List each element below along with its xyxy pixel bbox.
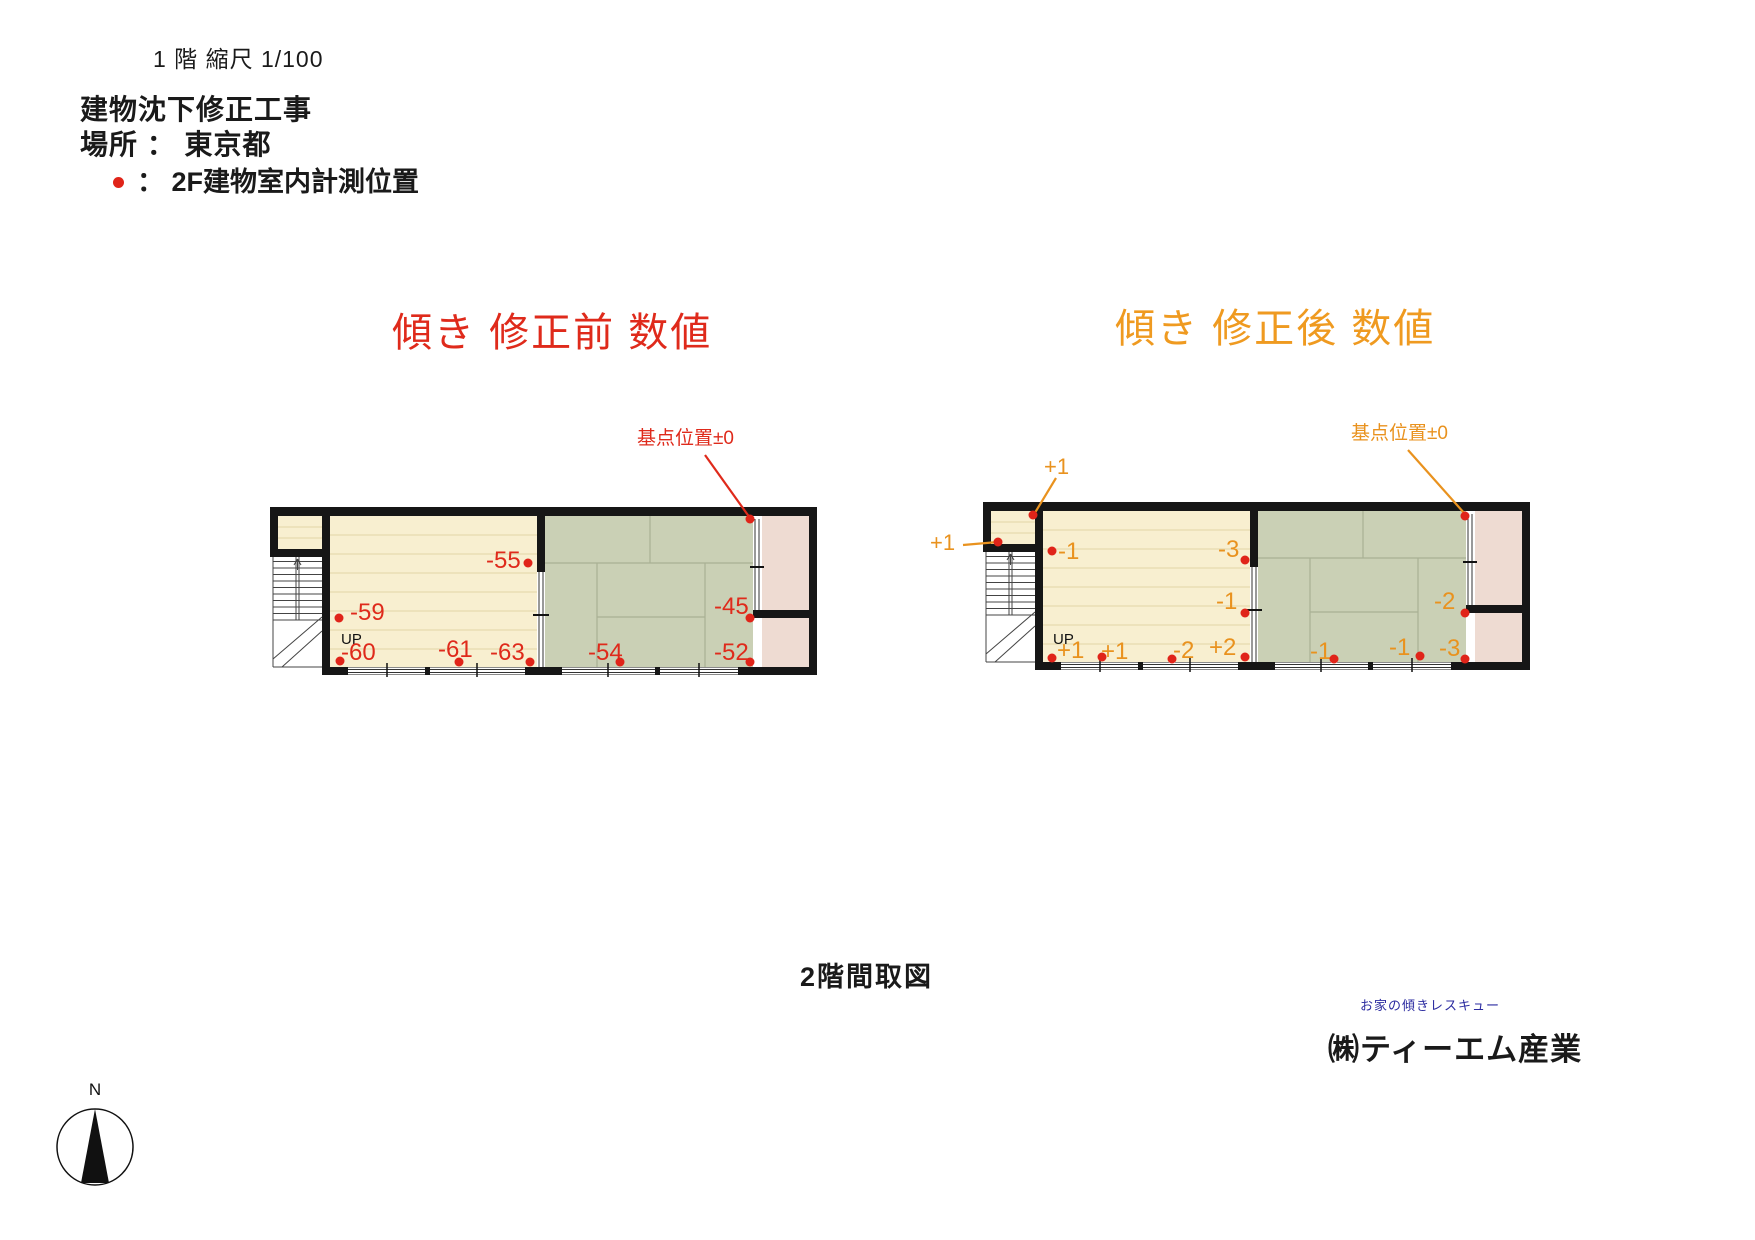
measurement-label: +1 <box>930 532 955 554</box>
after-datum-label: 基点位置±0 <box>1351 424 1448 443</box>
measurement-label: -45 <box>714 595 749 619</box>
measurement-label: -55 <box>486 549 521 573</box>
measurement-label: -1 <box>1216 590 1237 614</box>
measurement-label: +2 <box>1209 636 1236 660</box>
location-line: 場所 ： 東京都 <box>80 123 272 163</box>
drawing-page: 1 階 縮尺 1/100 建物沈下修正工事 場所 ： 東京都 ： 2F建物室内計… <box>0 0 1755 1240</box>
east-room-bottom <box>762 618 809 667</box>
measurement-label: -60 <box>341 641 376 665</box>
measurement-label: -52 <box>714 641 749 665</box>
measurement-label: -59 <box>350 601 385 625</box>
scale-note: 1 階 縮尺 1/100 <box>153 40 324 74</box>
before-datum-label: 基点位置±0 <box>637 429 734 448</box>
north-compass: N <box>48 1078 148 1193</box>
legend-measurement-dot-icon <box>113 177 124 188</box>
tatami-room <box>1258 511 1466 662</box>
measurement-dot <box>1241 653 1250 662</box>
company-name: ㈱ティーエム産業 <box>1328 1024 1582 1069</box>
before-datum-dot <box>746 515 755 524</box>
measurement-dot <box>1416 652 1425 661</box>
after-plan-title: 傾き 修正後 数値 <box>1115 296 1435 354</box>
measurement-dot <box>524 559 533 568</box>
drawing-caption: 2階間取図 <box>800 955 933 994</box>
measurement-label: -1 <box>1310 640 1331 664</box>
storage-room-floor <box>278 516 322 549</box>
measurement-dot <box>1330 655 1339 664</box>
measurement-dot <box>1029 511 1038 520</box>
measurement-dot <box>455 658 464 667</box>
stairs <box>986 552 1035 662</box>
after-datum-dot <box>1461 512 1470 521</box>
measurement-dot <box>1048 654 1057 663</box>
measurement-dot <box>746 614 755 623</box>
project-title: 建物沈下修正工事 <box>80 88 312 128</box>
stairs <box>273 557 322 667</box>
measurement-dot <box>994 538 1003 547</box>
measurement-dot <box>1461 655 1470 664</box>
before-plan-title: 傾き 修正前 数値 <box>392 300 712 358</box>
measurement-label: -63 <box>490 641 525 665</box>
measurement-dot <box>616 658 625 667</box>
measurement-dot <box>746 658 755 667</box>
east-room-top <box>762 516 809 610</box>
east-room-bottom <box>1475 613 1522 662</box>
measurement-label: -3 <box>1439 637 1460 661</box>
measurement-dot <box>1461 609 1470 618</box>
before-floor-plan <box>205 412 820 677</box>
measurement-dot <box>1098 653 1107 662</box>
compass-north-label: N <box>89 1080 101 1099</box>
east-room-top <box>1475 511 1522 605</box>
measurement-label: +1 <box>1044 456 1069 478</box>
brand-slogan: お家の傾きレスキュー <box>1360 995 1500 1014</box>
measurement-dot <box>335 614 344 623</box>
measurement-label: +1 <box>1057 639 1084 663</box>
measurement-label: -1 <box>1389 636 1410 660</box>
measurement-dot <box>526 658 535 667</box>
measurement-label: +1 <box>1101 640 1128 664</box>
measurement-dot <box>1168 655 1177 664</box>
measurement-label: -3 <box>1218 538 1239 562</box>
legend-label: ： 2F建物室内計測位置 <box>137 160 419 199</box>
measurement-dot <box>1241 609 1250 618</box>
measurement-label: -1 <box>1058 540 1079 564</box>
measurement-dot <box>1048 547 1057 556</box>
compass-needle-icon <box>81 1109 109 1183</box>
measurement-dot <box>336 657 345 666</box>
measurement-label: -2 <box>1434 590 1455 614</box>
measurement-dot <box>1241 556 1250 565</box>
